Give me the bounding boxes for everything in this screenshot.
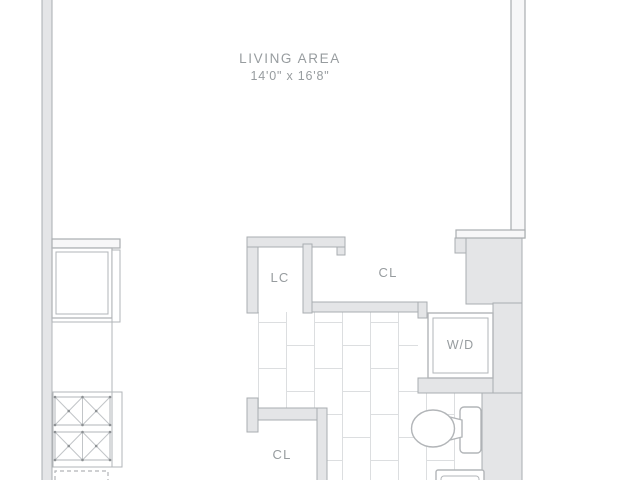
- refrigerator-inner: [56, 252, 108, 314]
- toilet-tank: [460, 407, 481, 453]
- wall-closet-lower-endcap: [247, 398, 258, 432]
- wall-closet-lower-right: [317, 408, 327, 480]
- wall-lc-top-tab: [337, 247, 345, 255]
- walls-hollow: [52, 0, 525, 248]
- linen-closet-label: LC: [256, 271, 304, 286]
- wall-right-exterior: [511, 0, 525, 238]
- dishwasher-dashed: [55, 471, 108, 480]
- wall-cl-bottom: [312, 302, 420, 312]
- wall-bathroom-right: [482, 393, 522, 480]
- closet-upper-label: CL: [312, 266, 464, 281]
- closet-lower-label: CL: [247, 448, 317, 463]
- wall-core-upper: [466, 238, 522, 304]
- counter-right-strip-lower: [112, 392, 122, 467]
- floor-plan: LIVING AREA 14'0" x 16'8" LC CL W/D CL: [0, 0, 640, 480]
- counter-right-strip-upper: [112, 250, 120, 322]
- wall-kitchen-stub: [52, 239, 120, 248]
- sink-basin: [441, 476, 479, 480]
- wall-lc-top: [247, 237, 345, 247]
- washer-dryer-label: W/D: [428, 338, 493, 352]
- wall-right-return: [456, 230, 525, 238]
- wall-lc-right: [303, 244, 312, 313]
- wall-cap-tab: [455, 238, 466, 253]
- wall-below-washer-dryer: [418, 378, 493, 393]
- toilet-bowl: [412, 410, 455, 447]
- kitchen-fixtures: [52, 248, 122, 467]
- wall-cl-end-post: [418, 302, 427, 318]
- living-area-dimensions: 14'0" x 16'8": [210, 69, 370, 83]
- kitchen-counter: [52, 322, 112, 393]
- wall-left-exterior: [42, 0, 52, 480]
- living-area-label: LIVING AREA: [210, 51, 370, 67]
